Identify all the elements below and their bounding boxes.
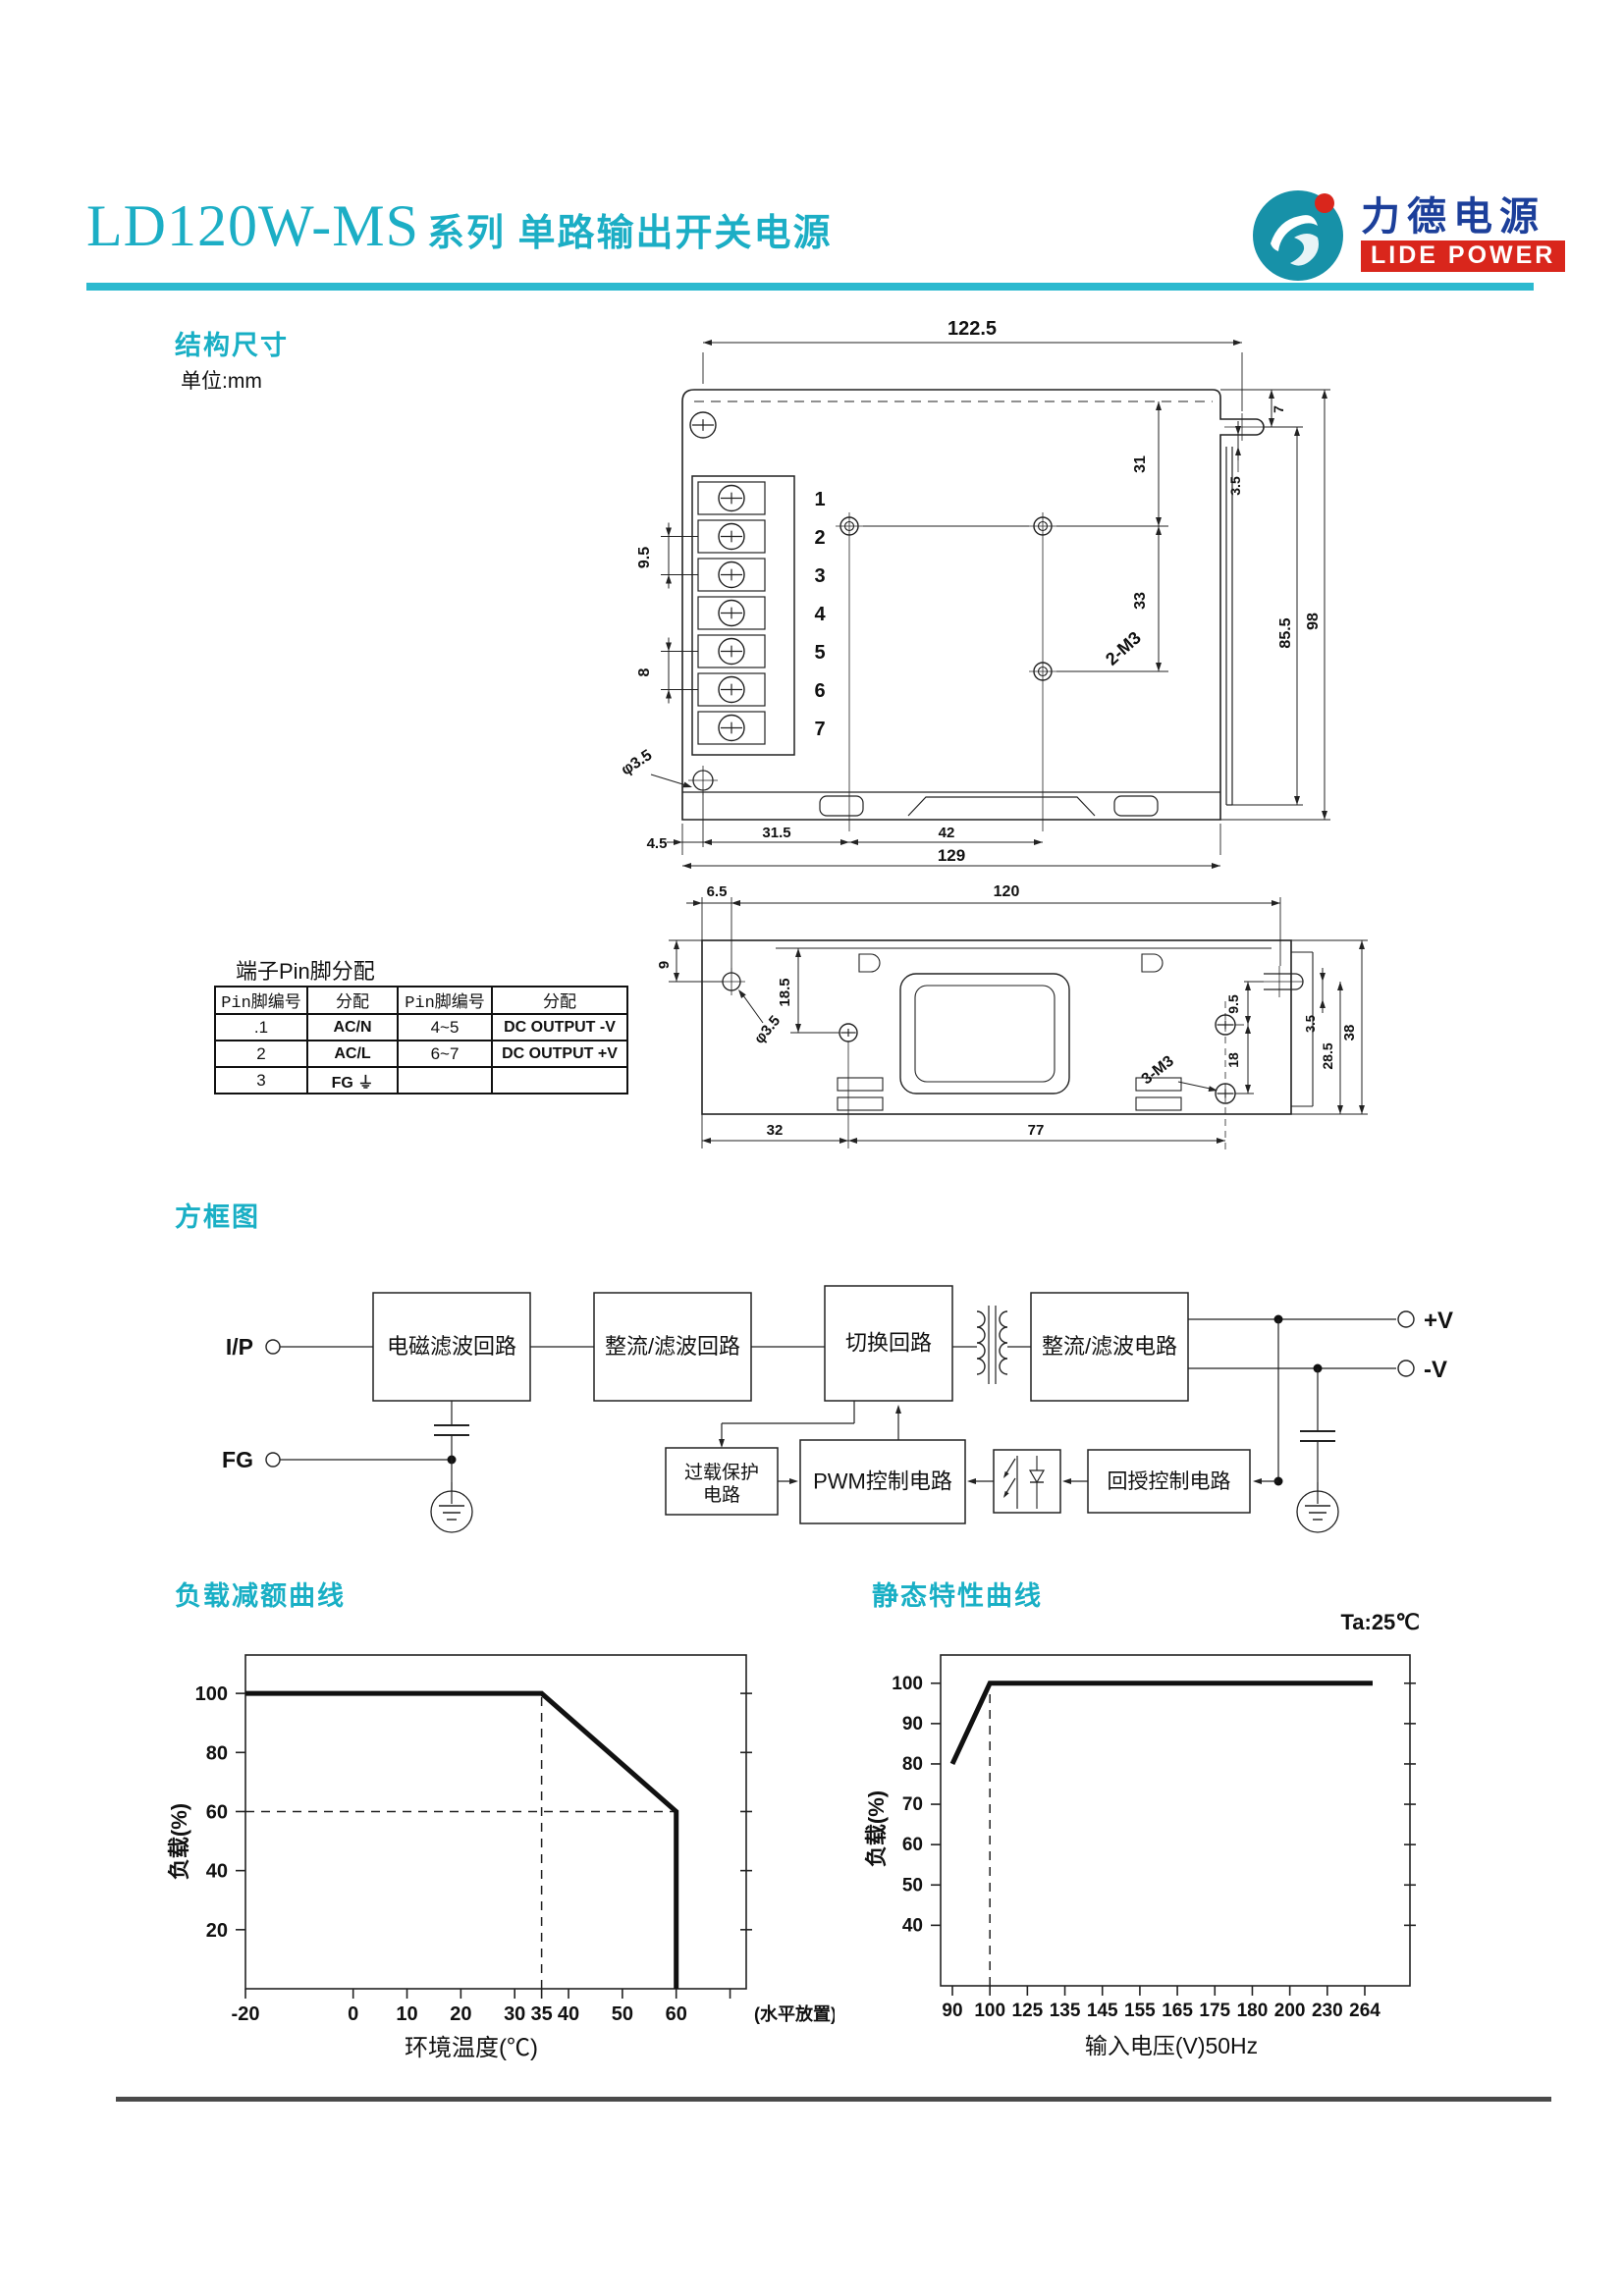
logo-text: 力德电源 LIDE POWER [1361,196,1565,272]
x-tick-label: 175 [1199,2001,1230,2021]
dimension-label: 28.5 [1320,1042,1335,1069]
dimension-label: 8 [636,667,653,676]
x-tick-label: 100 [974,2001,1005,2021]
x-tick-label: 60 [666,2003,687,2025]
x-tick-label: 180 [1237,2001,1269,2021]
footer-rule [116,2097,1551,2102]
pin-table-cell [492,1067,627,1094]
pin-table-cell: 3 [215,1067,307,1094]
x-tick-label: 145 [1087,2001,1118,2021]
x-tick-label: 135 [1050,2001,1081,2021]
pin-table-cell: 2 [215,1041,307,1067]
unit-note: 单位:mm [181,365,262,395]
dimension-label: 77 [1028,1122,1045,1139]
block-pwm: PWM控制电路 [813,1469,952,1494]
page-title: LD120W-MS 系列 单路输出开关电源 [86,192,833,260]
x-tick-label: 90 [942,2001,962,2021]
block: 整流/滤波回路 [605,1334,740,1359]
dimension-label: 129 [938,846,965,865]
block: 整流/滤波电路 [1042,1334,1177,1359]
pin-table-cell: DC OUTPUT -V [492,1014,627,1041]
block-overload: 过载保护 [684,1462,759,1483]
x-axis-label: 输入电压(V)50Hz [1085,2033,1258,2058]
mechanical-drawing-top-view: 1234567122.59.582-M3313373.585.598φ3.54.… [584,309,1360,874]
condition-label: Ta:25℃ [1340,1610,1420,1634]
y-tick-label: 100 [195,1683,228,1705]
dimension-label: 6.5 [707,883,728,900]
y-axis-label: 负载(%) [864,1790,889,1867]
dimension-label: 9 [656,961,673,969]
x-tick-label: 230 [1312,2001,1343,2021]
pin-table-cell: 6~7 [398,1041,492,1067]
y-tick-label: 60 [902,1835,923,1855]
dimension-label: 122.5 [947,318,997,340]
dimension-label: 4.5 [647,835,668,852]
dimension-label: 38 [1341,1025,1358,1041]
dimension-label: 18 [1225,1052,1241,1068]
pin-number: 1 [814,489,825,510]
dimension-label: φ3.5 [619,747,656,779]
dimension-label: 3.5 [1303,1015,1318,1033]
dimension-label: 85.5 [1277,617,1294,648]
pin-table-header: Pin脚编号 [398,987,492,1014]
y-tick-label: 90 [902,1714,923,1735]
pin-table-cell: FG ⏚ [307,1067,398,1094]
dimension-label: 9.5 [636,547,653,568]
block-overload: 电路 [703,1484,740,1506]
x-tick-label: 155 [1124,2001,1156,2021]
y-tick-label: 80 [902,1754,923,1775]
pin-table-cell: 4~5 [398,1014,492,1041]
pin-table-row: 2AC/L6~7DC OUTPUT +V [215,1041,627,1067]
section-heading-structure: 结构尺寸 [175,324,289,362]
output-neg: -V [1424,1357,1447,1383]
orientation-note: (水平放置) [754,2003,835,2024]
y-tick-label: 80 [206,1742,228,1764]
x-tick-label: 264 [1349,2001,1380,2021]
pin-table-title: 端子Pin脚分配 [236,954,375,986]
x-tick-label: 125 [1012,2001,1044,2021]
pin-number: 6 [814,680,825,702]
dimension-label: 120 [994,883,1020,900]
dimension-label: 9.5 [1225,994,1241,1014]
pin-number: 2 [814,527,825,549]
pin-table-header: 分配 [492,987,627,1014]
x-tick-label: 35 [530,2003,552,2025]
dimension-label: 2-M3 [1102,627,1145,668]
company-logo: 力德电源 LIDE POWER [1249,183,1565,285]
x-tick-label: 30 [504,2003,525,2025]
dimension-label: 31 [1132,455,1149,473]
pin-number: 3 [814,565,825,587]
y-tick-label: 40 [902,1915,923,1936]
terminal-ip: I/P [226,1334,253,1360]
dimension-label: 3-M3 [1139,1052,1177,1088]
x-tick-label: 200 [1274,2001,1306,2021]
pin-table-row: .1AC/N4~5DC OUTPUT -V [215,1014,627,1041]
pin-table-cell: DC OUTPUT +V [492,1041,627,1067]
pin-table-cell: AC/N [307,1014,398,1041]
title-subtitle: 系列 单路输出开关电源 [427,202,833,256]
dimension-label: 31.5 [762,825,790,841]
x-tick-label: 50 [612,2003,633,2025]
y-tick-label: 50 [902,1875,923,1896]
y-tick-label: 60 [206,1801,228,1823]
x-tick-label: 40 [558,2003,579,2025]
block-diagram: I/PFG电磁滤波回路整流/滤波回路切换回路整流/滤波电路+V-V过载保护电路P… [147,1229,1483,1553]
dimension-label: 7 [1271,405,1286,413]
logo-name-cn: 力德电源 [1361,196,1565,238]
pin-table-row: 3FG ⏚ [215,1067,627,1094]
x-tick-label: 0 [348,2003,358,2025]
pin-table-header-row: Pin脚编号分配Pin脚编号分配 [215,987,627,1014]
pin-table-header: Pin脚编号 [215,987,307,1014]
pin-assignment-table: Pin脚编号分配Pin脚编号分配 .1AC/N4~5DC OUTPUT -V2A… [214,986,628,1095]
dimension-label: φ3.5 [751,1013,784,1047]
y-tick-label: 70 [902,1794,923,1815]
dimension-label: 18.5 [777,978,793,1006]
x-tick-label: 10 [396,2003,417,2025]
pin-table-header: 分配 [307,987,398,1014]
dimension-label: 98 [1305,613,1322,630]
dimension-label: 3.5 [1227,476,1243,496]
y-axis-label: 负载(%) [167,1803,191,1880]
header-rule [86,283,1534,291]
y-tick-label: 40 [206,1861,228,1883]
block: 电磁滤波回路 [387,1334,516,1359]
pin-number: 7 [814,719,825,740]
block-feedback: 回授控制电路 [1108,1470,1231,1493]
dimension-label: 33 [1132,592,1149,610]
x-tick-label: 20 [450,2003,471,2025]
x-tick-label: -20 [232,2003,260,2025]
x-axis-label: 环境温度(℃) [405,2035,538,2061]
y-tick-label: 100 [892,1674,923,1694]
pin-number: 4 [814,604,826,625]
y-tick-label: 20 [206,1920,228,1942]
mechanical-drawing-side-view: 6.51209φ3.518.53-M39.5183.528.5383277 [643,864,1370,1168]
block: 切换回路 [845,1331,932,1356]
output-pos: +V [1424,1308,1453,1334]
x-tick-label: 165 [1162,2001,1193,2021]
terminal-fg: FG [222,1447,253,1472]
logo-mark-icon [1249,183,1351,285]
derating-curve-chart: -2001020303540506020406080100负载(%)环境温度(℃… [147,1598,835,2069]
logo-name-en: LIDE POWER [1361,240,1565,272]
pin-table-cell [398,1067,492,1094]
pin-table-cell: .1 [215,1014,307,1041]
pin-number: 5 [814,642,825,664]
dimension-label: 42 [939,825,955,841]
pin-table-cell: AC/L [307,1041,398,1067]
static-curve-chart: Ta:25℃9010012513514515516517518020023026… [842,1578,1471,2074]
title-model: LD120W-MS [86,192,419,260]
datasheet-page: LD120W-MS 系列 单路输出开关电源 力德电源 LIDE POWER 结构… [0,0,1624,2296]
dimension-label: 32 [767,1122,784,1139]
